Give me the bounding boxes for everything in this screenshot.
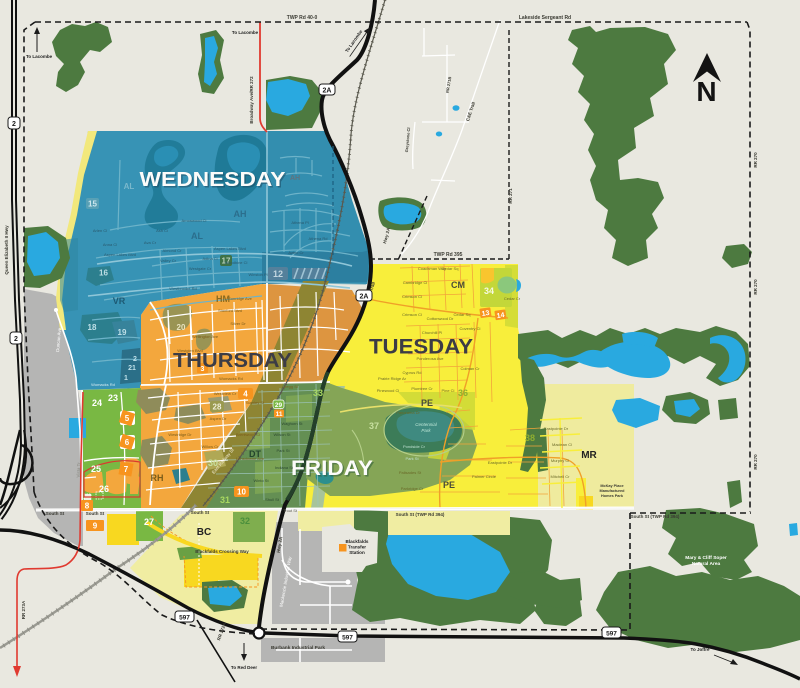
- svg-text:South St: South St: [86, 511, 105, 516]
- svg-text:N: N: [696, 76, 716, 107]
- svg-text:South St: South St: [46, 511, 65, 516]
- svg-text:RR 270: RR 270: [753, 454, 758, 470]
- svg-text:Silver Dr: Silver Dr: [230, 321, 246, 326]
- svg-text:37: 37: [369, 421, 379, 431]
- svg-text:Aspen Dr: Aspen Dr: [210, 416, 227, 421]
- svg-text:2A: 2A: [360, 294, 369, 301]
- svg-text:To Red Deer: To Red Deer: [231, 665, 257, 670]
- svg-text:19: 19: [118, 328, 127, 337]
- svg-text:RR 271: RR 271: [508, 188, 513, 204]
- svg-text:Aspen Lakes Blvd: Aspen Lakes Blvd: [104, 252, 136, 257]
- svg-text:12: 12: [273, 269, 283, 279]
- svg-text:Cyprus Rd: Cyprus Rd: [403, 370, 422, 375]
- svg-text:11: 11: [276, 411, 283, 418]
- svg-text:Cambridge Cl: Cambridge Cl: [403, 280, 428, 285]
- svg-text:Indiana St: Indiana St: [275, 465, 294, 470]
- svg-text:Westview Cr: Westview Cr: [214, 391, 237, 396]
- svg-text:THURSDAY: THURSDAY: [173, 350, 293, 372]
- svg-text:18: 18: [88, 323, 97, 332]
- svg-text:Mary & Cliff Soper: Mary & Cliff Soper: [685, 555, 727, 561]
- svg-text:Churchill Pl: Churchill Pl: [422, 330, 442, 335]
- svg-text:To Lacombe: To Lacombe: [232, 30, 259, 35]
- svg-text:14: 14: [496, 312, 505, 320]
- svg-text:Willow Cr: Willow Cr: [202, 444, 220, 449]
- svg-text:Centennial: Centennial: [415, 422, 438, 427]
- svg-text:Winston Pl: Winston Pl: [248, 272, 267, 277]
- svg-text:Adina Cl: Adina Cl: [202, 256, 217, 261]
- svg-text:Colman Cr: Colman Cr: [460, 366, 480, 371]
- svg-text:Ava Cr: Ava Cr: [144, 240, 157, 245]
- svg-text:CM: CM: [451, 280, 465, 290]
- svg-text:Homes Park: Homes Park: [601, 494, 624, 498]
- svg-text:16: 16: [99, 269, 108, 278]
- svg-text:Cedar Cr: Cedar Cr: [504, 296, 521, 301]
- svg-text:10: 10: [237, 488, 246, 497]
- svg-text:Coventry Cl: Coventry Cl: [460, 326, 481, 331]
- svg-text:Park St: Park St: [276, 448, 290, 453]
- svg-text:Manufactured: Manufactured: [600, 489, 626, 493]
- svg-text:26: 26: [99, 484, 109, 494]
- svg-text:20: 20: [177, 323, 186, 332]
- svg-text:Palisades St: Palisades St: [399, 470, 422, 475]
- svg-text:31: 31: [220, 495, 230, 505]
- svg-text:Crimson Cl: Crimson Cl: [402, 312, 422, 317]
- svg-text:To Lacombe: To Lacombe: [26, 54, 53, 59]
- svg-text:WEDNESDAY: WEDNESDAY: [140, 169, 287, 191]
- svg-text:Panorama Dr: Panorama Dr: [396, 410, 420, 415]
- svg-text:Wilson St: Wilson St: [274, 432, 292, 437]
- svg-text:TWP Rd 395: TWP Rd 395: [434, 252, 463, 258]
- svg-text:Natural Area: Natural Area: [692, 561, 721, 567]
- svg-text:8: 8: [85, 502, 90, 511]
- svg-text:Woodbine Cl: Woodbine Cl: [225, 260, 248, 265]
- svg-text:4: 4: [243, 390, 248, 399]
- svg-text:Pondside Cr: Pondside Cr: [403, 444, 426, 449]
- svg-text:Ponderosa Ave: Ponderosa Ave: [416, 356, 444, 361]
- svg-text:Plumtree Cr: Plumtree Cr: [411, 386, 433, 391]
- svg-text:Stanley St: Stanley St: [246, 400, 265, 405]
- svg-text:9: 9: [93, 522, 98, 531]
- svg-text:FRIDAY: FRIDAY: [291, 457, 373, 480]
- svg-text:34: 34: [484, 286, 494, 296]
- svg-text:2: 2: [133, 356, 137, 363]
- svg-text:Valley Cr: Valley Cr: [160, 258, 177, 263]
- svg-text:24: 24: [92, 398, 102, 408]
- svg-text:2A: 2A: [323, 88, 332, 95]
- svg-text:Cedar Sq: Cedar Sq: [454, 312, 471, 317]
- svg-text:Westridge Dr: Westridge Dr: [168, 432, 192, 437]
- svg-text:2: 2: [14, 336, 18, 343]
- svg-text:21: 21: [128, 365, 136, 372]
- svg-text:RR 273A: RR 273A: [21, 600, 26, 619]
- svg-text:Womacks Rd: Womacks Rd: [91, 382, 115, 387]
- svg-text:MR: MR: [581, 450, 597, 461]
- svg-text:Lansdowne Ave: Lansdowne Ave: [236, 456, 265, 461]
- svg-text:33: 33: [313, 388, 323, 398]
- svg-text:Burbank Industrial Park: Burbank Industrial Park: [271, 645, 325, 651]
- svg-text:Trout St: Trout St: [283, 508, 298, 513]
- svg-text:2: 2: [12, 121, 16, 128]
- svg-text:Prairie Ridge Ar: Prairie Ridge Ar: [378, 376, 407, 381]
- svg-text:AL: AL: [124, 182, 135, 191]
- svg-text:Almond Cr: Almond Cr: [163, 248, 183, 253]
- svg-text:Park: Park: [421, 428, 431, 433]
- svg-text:Eastpointe Dr: Eastpointe Dr: [544, 426, 569, 431]
- svg-text:Broadway Ave/RR 272: Broadway Ave/RR 272: [249, 76, 254, 124]
- svg-text:Pine Cl: Pine Cl: [442, 388, 455, 393]
- svg-text:38: 38: [525, 433, 535, 443]
- svg-text:23: 23: [108, 393, 118, 403]
- svg-text:Pinewood Cl: Pinewood Cl: [377, 388, 400, 393]
- svg-text:Stanford Blvd: Stanford Blvd: [218, 308, 242, 313]
- svg-text:Shull St: Shull St: [265, 497, 280, 502]
- svg-text:25: 25: [91, 464, 101, 474]
- svg-text:Athena Pl: Athena Pl: [291, 220, 308, 225]
- svg-text:13: 13: [481, 310, 490, 318]
- svg-text:7: 7: [124, 465, 129, 474]
- svg-text:Gregg St: Gregg St: [282, 384, 299, 389]
- svg-text:AH: AH: [290, 175, 300, 182]
- svg-text:Blackfalds Crossing Way: Blackfalds Crossing Way: [195, 549, 249, 554]
- svg-text:Aspen Lakes Blvd: Aspen Lakes Blvd: [214, 246, 246, 251]
- svg-text:McKay Place: McKay Place: [600, 484, 623, 488]
- svg-text:TWP Rd 40-0: TWP Rd 40-0: [287, 15, 318, 21]
- svg-text:Palmer Circle: Palmer Circle: [472, 474, 497, 479]
- svg-text:Murphy Cl: Murphy Cl: [551, 458, 569, 463]
- svg-text:Anna Cl: Anna Cl: [103, 242, 117, 247]
- svg-text:Park St: Park St: [405, 456, 419, 461]
- svg-text:Station: Station: [349, 550, 365, 555]
- svg-text:Eastpointe Dr: Eastpointe Dr: [488, 460, 513, 465]
- svg-text:Aztec Cr: Aztec Cr: [288, 250, 304, 255]
- svg-text:Queen Elizabeth II Hwy: Queen Elizabeth II Hwy: [4, 225, 9, 275]
- svg-text:Parkridge Cr: Parkridge Cr: [401, 486, 424, 491]
- svg-text:BC: BC: [197, 527, 211, 538]
- svg-text:6: 6: [125, 438, 130, 447]
- svg-text:28: 28: [213, 403, 222, 412]
- svg-text:5: 5: [125, 414, 130, 423]
- svg-text:Maclean Cl: Maclean Cl: [552, 442, 572, 447]
- svg-text:VR: VR: [113, 296, 126, 306]
- svg-text:27: 27: [144, 517, 154, 527]
- svg-text:Athena Rd: Athena Rd: [309, 236, 328, 241]
- svg-text:597: 597: [179, 615, 190, 622]
- svg-text:15: 15: [88, 200, 97, 209]
- svg-text:Ash Cl: Ash Cl: [156, 228, 168, 233]
- svg-text:32: 32: [240, 516, 250, 526]
- svg-text:RR 270: RR 270: [753, 152, 758, 168]
- svg-text:South St (TWP Rd 394): South St (TWP Rd 394): [631, 514, 680, 519]
- svg-text:Westbrooke Rd: Westbrooke Rd: [169, 286, 197, 291]
- svg-text:Winto St: Winto St: [253, 478, 269, 483]
- svg-text:Transfer: Transfer: [348, 545, 366, 550]
- svg-text:Sunridge Ave: Sunridge Ave: [228, 296, 252, 301]
- svg-text:Crimson Cl: Crimson Cl: [402, 294, 422, 299]
- svg-text:Womacks Rd: Womacks Rd: [219, 376, 243, 381]
- svg-text:36: 36: [458, 388, 468, 398]
- svg-text:PE: PE: [443, 480, 455, 490]
- svg-text:Brentwood Cl: Brentwood Cl: [236, 432, 260, 437]
- svg-text:1: 1: [124, 375, 128, 382]
- svg-text:To Joffre: To Joffre: [691, 647, 710, 652]
- svg-text:RR 270: RR 270: [753, 279, 758, 295]
- svg-text:Westglen Blvd: Westglen Blvd: [177, 348, 203, 353]
- svg-text:Arlen Cl: Arlen Cl: [93, 228, 107, 233]
- svg-text:Cottonwood Dr: Cottonwood Dr: [427, 316, 454, 321]
- svg-text:597: 597: [606, 631, 617, 638]
- svg-text:Mitchell Cr: Mitchell Cr: [551, 474, 571, 479]
- svg-text:Westgate Cr: Westgate Cr: [189, 266, 212, 271]
- svg-text:Vista Tr: Vista Tr: [76, 462, 82, 478]
- svg-text:29: 29: [275, 402, 283, 409]
- svg-text:Blackfalds: Blackfalds: [346, 539, 369, 544]
- svg-text:PE: PE: [421, 398, 433, 408]
- svg-text:South St (TWP Rd 394): South St (TWP Rd 394): [396, 512, 445, 517]
- svg-text:Waghorn St: Waghorn St: [282, 421, 304, 426]
- svg-text:South St: South St: [191, 510, 210, 515]
- svg-text:Wellington Ave: Wellington Ave: [192, 334, 219, 339]
- svg-text:AH: AH: [234, 209, 247, 219]
- svg-text:Cedar Sq: Cedar Sq: [442, 266, 459, 271]
- svg-text:Arrowwood Cl: Arrowwood Cl: [182, 218, 207, 223]
- svg-text:RH: RH: [151, 473, 164, 483]
- svg-text:AL: AL: [191, 231, 203, 241]
- svg-text:597: 597: [342, 635, 353, 642]
- svg-text:Lakeside Sergeant Rd: Lakeside Sergeant Rd: [519, 15, 571, 21]
